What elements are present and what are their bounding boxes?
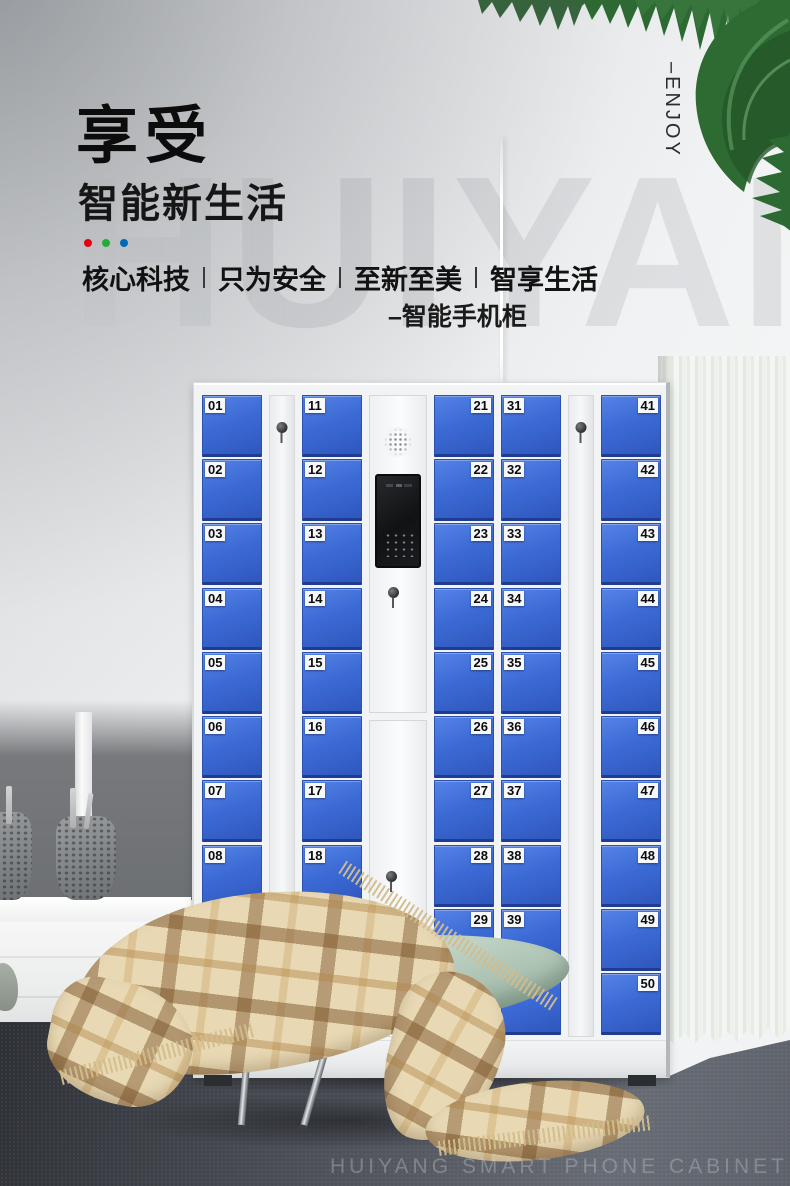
locker-door-07: 07 [202,780,262,842]
locker-door-11: 11 [302,395,362,457]
door-number-label: 26 [471,719,491,734]
vase-stick [6,786,12,824]
locker-door-47: 47 [601,780,661,842]
door-number-label: 14 [305,591,325,606]
locker-door-25: 25 [434,652,494,714]
locker-door-14: 14 [302,588,362,650]
locker-door-28: 28 [434,845,494,907]
locker-door-31: 31 [501,395,561,457]
key-lock-icon [388,587,399,598]
key-lock-icon [386,871,397,882]
keypad-icon [382,530,414,557]
door-number-label: 02 [205,462,225,477]
locker-door-34: 34 [501,588,561,650]
door-number-label: 34 [504,591,524,606]
locker-door-33: 33 [501,523,561,585]
door-number-label: 28 [471,848,491,863]
door-number-label: 42 [638,462,658,477]
door-number-label: 50 [638,976,658,991]
locker-door-26: 26 [434,716,494,778]
locker-door-49: 49 [601,909,661,971]
door-number-label: 47 [638,783,658,798]
tagline-separator [203,267,205,288]
accent-dot [84,239,92,247]
door-number-label: 01 [205,398,225,413]
locker-door-02: 02 [202,459,262,521]
door-number-label: 45 [638,655,658,670]
door-number-label: 29 [471,912,491,927]
locker-door-03: 03 [202,523,262,585]
lock-strip-2 [568,395,594,1037]
door-number-label: 04 [205,591,225,606]
vase-stick [70,788,76,828]
tagline-phrase: 至新至美 [354,258,462,297]
locker-door-42: 42 [601,459,661,521]
tagline: 核心科技只为安全至新至美智享生活 [82,258,598,297]
door-number-label: 31 [504,398,524,413]
locker-door-24: 24 [434,588,494,650]
speaker-grille-icon [383,427,413,457]
locker-door-38: 38 [501,845,561,907]
tagline-phrase: 智享生活 [490,258,598,297]
locker-door-41: 41 [601,395,661,457]
key-lock-icon [277,422,288,433]
product-label: –智能手机柜 [388,297,527,333]
door-number-label: 18 [305,848,325,863]
locker-door-44: 44 [601,588,661,650]
locker-door-37: 37 [501,780,561,842]
door-number-label: 17 [305,783,325,798]
locker-door-17: 17 [302,780,362,842]
vase-left [0,812,32,900]
locker-door-50: 50 [601,973,661,1035]
door-number-label: 16 [305,719,325,734]
door-number-label: 13 [305,526,325,541]
locker-door-06: 06 [202,716,262,778]
door-number-label: 15 [305,655,325,670]
door-number-label: 22 [471,462,491,477]
tagline-phrase: 核心科技 [82,258,190,297]
door-number-label: 36 [504,719,524,734]
enjoy-vertical-label: –ENJOY [660,62,683,158]
locker-door-05: 05 [202,652,262,714]
locker-door-46: 46 [601,716,661,778]
control-screen [375,474,421,568]
locker-door-23: 23 [434,523,494,585]
door-number-label: 23 [471,526,491,541]
door-number-label: 48 [638,848,658,863]
locker-door-22: 22 [434,459,494,521]
door-number-label: 32 [504,462,524,477]
key-lock-icon [576,422,587,433]
accent-dot [102,239,110,247]
locker-door-48: 48 [601,845,661,907]
door-number-label: 33 [504,526,524,541]
door-number-label: 05 [205,655,225,670]
locker-door-35: 35 [501,652,561,714]
door-number-label: 46 [638,719,658,734]
door-number-label: 11 [305,398,325,413]
door-number-label: 07 [205,783,225,798]
door-number-label: 06 [205,719,225,734]
curtain [658,356,790,1046]
locker-door-01: 01 [202,395,262,457]
accent-dot [120,239,128,247]
locker-door-13: 13 [302,523,362,585]
door-number-label: 41 [638,398,658,413]
locker-door-45: 45 [601,652,661,714]
camera-sensor-icon [386,484,412,487]
door-number-label: 44 [638,591,658,606]
locker-door-15: 15 [302,652,362,714]
title-subtitle: 智能新生活 [78,184,288,224]
tagline-separator [475,267,477,288]
door-number-label: 38 [504,848,524,863]
door-number-label: 03 [205,526,225,541]
door-number-label: 25 [471,655,491,670]
door-number-label: 39 [504,912,524,927]
locker-door-27: 27 [434,780,494,842]
locker-door-12: 12 [302,459,362,521]
door-column-5: 41424344454647484950 [601,395,661,1037]
control-panel-upper [369,395,427,713]
locker-door-21: 21 [434,395,494,457]
locker-door-43: 43 [601,523,661,585]
door-number-label: 35 [504,655,524,670]
palm-leaves-illustration [470,0,790,240]
tagline-separator [339,267,341,288]
poster-canvas: HUIYAN 享受 智能新生活 核心科技只为安全至新至美智享生活 –智能手机柜 … [0,0,790,1186]
door-number-label: 49 [638,912,658,927]
door-number-label: 08 [205,848,225,863]
door-number-label: 37 [504,783,524,798]
tagline-phrase: 只为安全 [218,258,326,297]
locker-door-36: 36 [501,716,561,778]
door-number-label: 43 [638,526,658,541]
door-number-label: 24 [471,591,491,606]
accent-dots [84,239,128,247]
locker-door-04: 04 [202,588,262,650]
footer-caption: HUIYANG SMART PHONE CABINET [330,1155,788,1179]
door-number-label: 21 [471,398,491,413]
door-number-label: 12 [305,462,325,477]
locker-door-32: 32 [501,459,561,521]
door-number-label: 27 [471,783,491,798]
title-main: 享受 [76,106,214,168]
locker-door-16: 16 [302,716,362,778]
